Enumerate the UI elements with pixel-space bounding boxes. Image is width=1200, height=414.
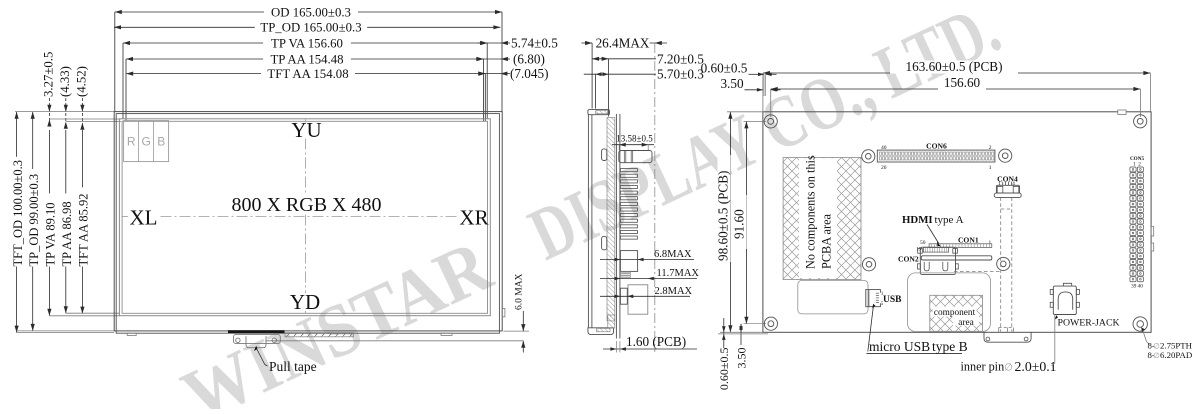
svg-text:G: G <box>142 135 151 149</box>
svg-text:39 40: 39 40 <box>1131 284 1143 290</box>
svg-text:type B: type B <box>932 339 968 354</box>
svg-text:(4.33): (4.33) <box>58 66 72 97</box>
svg-text:CON2: CON2 <box>898 254 919 263</box>
svg-text:20: 20 <box>881 165 887 171</box>
svg-text:inner pin: inner pin <box>961 360 1005 374</box>
svg-text:40: 40 <box>881 145 887 151</box>
svg-text:TP VA 89.10: TP VA 89.10 <box>44 202 58 266</box>
svg-text:POWER-JACK: POWER-JACK <box>1058 317 1120 328</box>
svg-text:TFT AA 85.92: TFT AA 85.92 <box>77 193 91 266</box>
svg-text:2.8MAX: 2.8MAX <box>655 286 693 297</box>
svg-text:TFT AA 154.08: TFT AA 154.08 <box>267 67 348 81</box>
svg-text:3.27±0.5: 3.27±0.5 <box>41 52 55 97</box>
svg-text:type A: type A <box>935 214 964 226</box>
svg-text:CON1: CON1 <box>958 235 979 244</box>
svg-text:micro USB: micro USB <box>869 339 930 354</box>
svg-text:2: 2 <box>989 145 992 151</box>
svg-text:5.70±0.3: 5.70±0.3 <box>657 67 704 82</box>
svg-text:0.60±0.5: 0.60±0.5 <box>701 61 748 76</box>
svg-text:OD 165.00±0.3: OD 165.00±0.3 <box>271 5 351 19</box>
svg-text:3.50: 3.50 <box>720 76 743 91</box>
svg-text:2.0±0.1: 2.0±0.1 <box>1015 359 1057 374</box>
svg-text:R: R <box>127 135 136 149</box>
svg-text:TP AA 86.98: TP AA 86.98 <box>60 201 74 266</box>
svg-text:PCBA area: PCBA area <box>820 213 834 269</box>
svg-text:area: area <box>958 318 973 328</box>
svg-text:1 2: 1 2 <box>1133 162 1141 168</box>
svg-text:6.0 MAX: 6.0 MAX <box>514 273 524 310</box>
svg-text:1: 1 <box>989 240 992 246</box>
svg-text:11.7MAX: 11.7MAX <box>657 268 700 279</box>
svg-text:26.4MAX: 26.4MAX <box>596 36 650 51</box>
svg-text:163.60±0.5 (PCB): 163.60±0.5 (PCB) <box>906 59 1003 74</box>
svg-text:TP VA 156.60: TP VA 156.60 <box>271 36 343 50</box>
svg-text:TP AA 154.48: TP AA 154.48 <box>270 52 343 66</box>
svg-text:(4.52): (4.52) <box>74 66 88 97</box>
svg-text:component: component <box>934 308 976 318</box>
svg-text:TFT_OD 100.00±0.3: TFT_OD 100.00±0.3 <box>11 160 25 267</box>
svg-text:XR: XR <box>459 205 488 229</box>
svg-text:6.8MAX: 6.8MAX <box>654 249 692 260</box>
svg-text:(6.80): (6.80) <box>513 51 545 66</box>
svg-text:0.60±0.5: 0.60±0.5 <box>717 348 731 391</box>
svg-text:800 X RGB X 480: 800 X RGB X 480 <box>231 194 381 216</box>
svg-text:USB: USB <box>883 295 902 305</box>
svg-text:5.74±0.5: 5.74±0.5 <box>511 35 558 50</box>
svg-text:1.60 (PCB): 1.60 (PCB) <box>626 334 686 349</box>
svg-text:HDMI: HDMI <box>902 214 933 226</box>
svg-text:(7.045): (7.045) <box>510 66 548 81</box>
svg-text:1: 1 <box>989 165 992 171</box>
svg-text:B: B <box>157 135 165 149</box>
svg-text:13.58±0.5: 13.58±0.5 <box>616 134 653 144</box>
svg-text:YD: YD <box>290 290 320 314</box>
svg-text:2.75PTH: 2.75PTH <box>1160 341 1193 351</box>
svg-text:TP_OD 165.00±0.3: TP_OD 165.00±0.3 <box>260 21 361 35</box>
svg-text:No components on this: No components on this <box>804 155 818 269</box>
svg-text:∅: ∅ <box>1004 363 1013 374</box>
svg-text:TP_OD 99.00±0.3: TP_OD 99.00±0.3 <box>27 174 41 267</box>
svg-text:156.60: 156.60 <box>944 75 981 90</box>
svg-text:6.20PAD: 6.20PAD <box>1160 350 1192 360</box>
svg-text:YU: YU <box>291 118 321 142</box>
svg-text:XL: XL <box>130 205 158 229</box>
svg-text:3.50: 3.50 <box>734 348 748 369</box>
svg-text:7.20±0.5: 7.20±0.5 <box>657 51 704 66</box>
svg-text:91.60: 91.60 <box>732 209 747 239</box>
svg-text:CON6: CON6 <box>926 141 947 150</box>
svg-text:98.60±0.5 (PCB): 98.60±0.5 (PCB) <box>716 171 731 261</box>
svg-text:50: 50 <box>920 240 926 246</box>
svg-text:Pull tape: Pull tape <box>269 359 317 374</box>
